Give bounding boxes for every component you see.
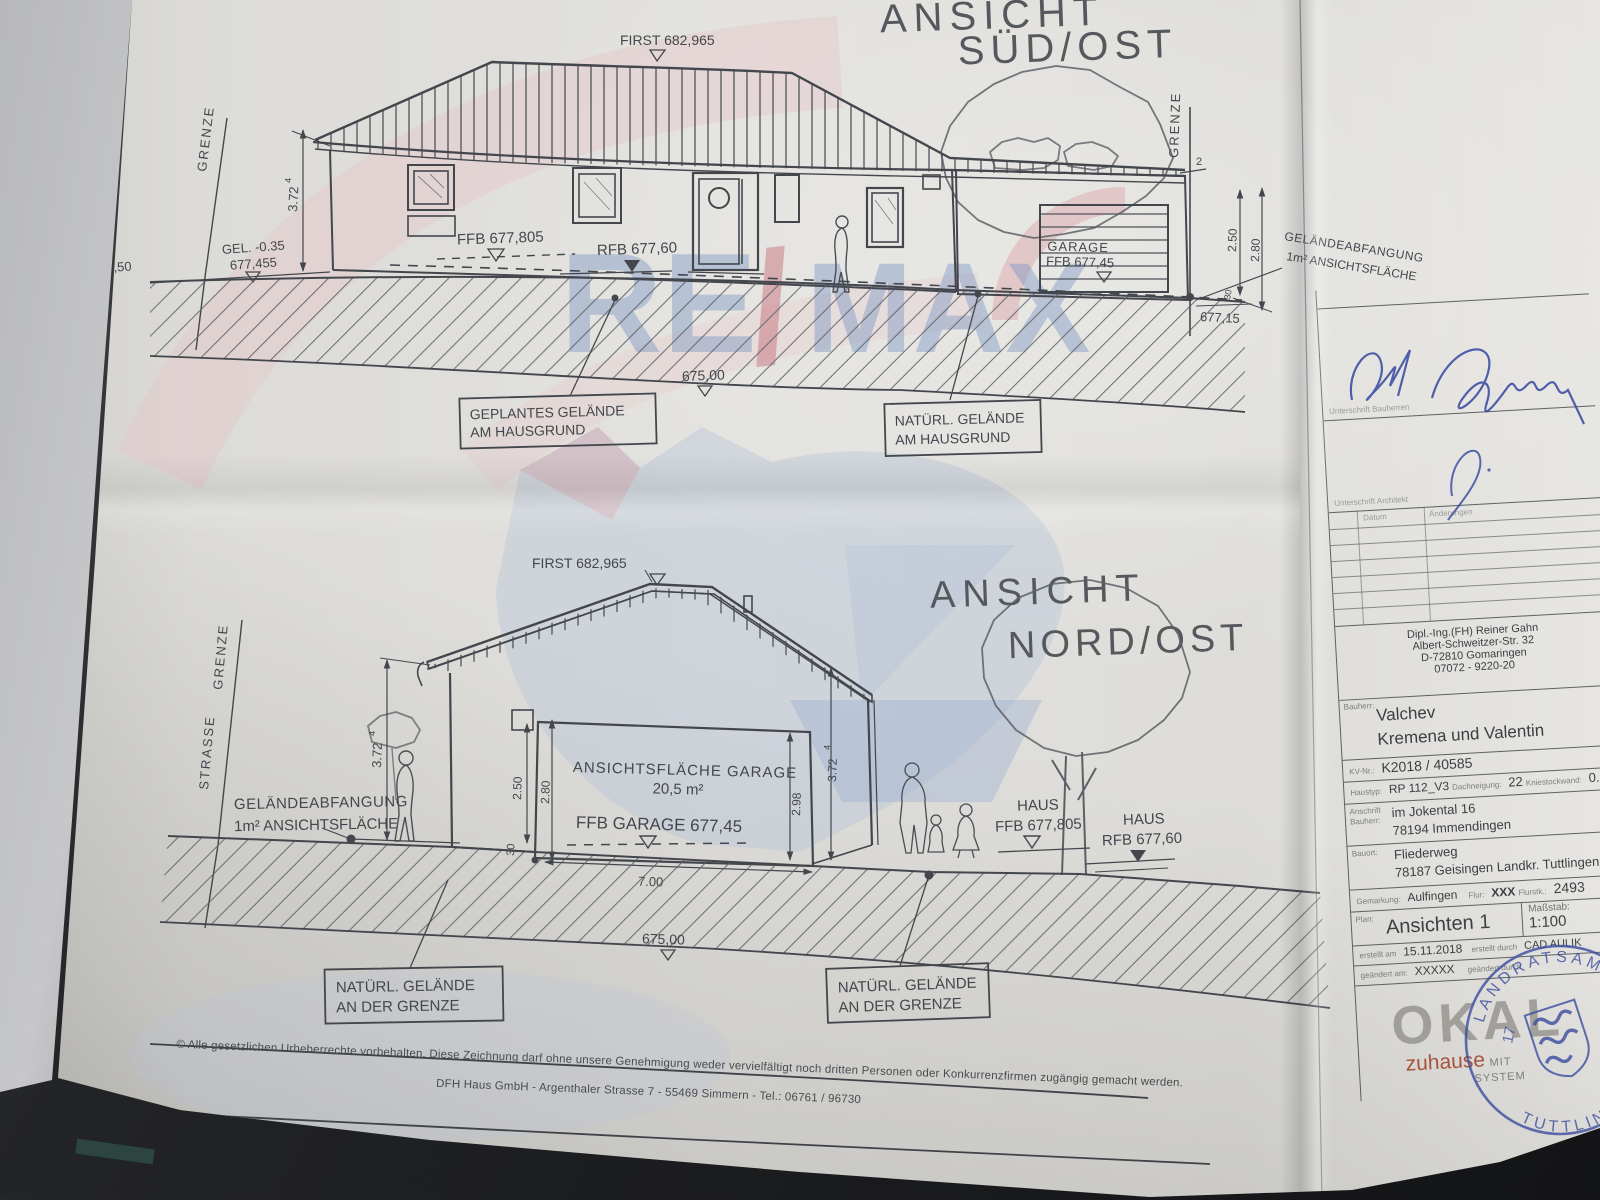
- bauort-label: Bauort:: [1352, 848, 1378, 858]
- view-title-direction: NORD/OST: [1007, 617, 1249, 667]
- view-title-direction: SÜD/OST: [957, 22, 1178, 74]
- gelaende-note-left: GELÄNDEABFANGUNG 1m² ANSICHTSFLÄCHE: [234, 793, 460, 843]
- svg-text:HAUS: HAUS: [1017, 796, 1059, 814]
- horizontal-crease: [0, 455, 1300, 535]
- gemarkung-label: Gemarkung:: [1356, 895, 1400, 906]
- haus-ffb-level: HAUS FFB 677,805: [995, 796, 1090, 852]
- grenze-right-label: GRENZE: [1166, 91, 1183, 158]
- level-675: 675,00: [642, 930, 686, 947]
- dachneigung-value: 22: [1508, 774, 1523, 790]
- svg-text:2.50: 2.50: [1225, 228, 1240, 252]
- svg-text:2.50: 2.50: [510, 776, 525, 800]
- svg-text:FFB 677,805: FFB 677,805: [457, 228, 544, 248]
- haustyp-value: RP 112_V3: [1388, 779, 1449, 796]
- svg-text:FFB 677,805: FFB 677,805: [995, 816, 1082, 836]
- strasse-label: STRASSE: [196, 715, 217, 791]
- flurstk-value: 2493: [1553, 879, 1585, 897]
- revision-table: Datum Änderungen: [1329, 497, 1600, 626]
- svg-text:1m² ANSICHTSFLÄCHE: 1m² ANSICHTSFLÄCHE: [234, 815, 398, 835]
- svg-text:RFB 677,60: RFB 677,60: [597, 239, 678, 259]
- revision-col-datum: Datum: [1363, 512, 1387, 522]
- okal-tagline-mit: MIT: [1489, 1056, 1512, 1069]
- ffb-level: FFB 677,805: [437, 228, 575, 261]
- anschrift-label-1: Anschrift: [1349, 806, 1381, 817]
- dachneigung-label: Dachneigung:: [1452, 780, 1502, 792]
- title-block: Unterschrift Bauherren Unterschrift Arch…: [1315, 275, 1600, 1101]
- svg-text:4: 4: [367, 731, 377, 736]
- plan-title: Ansichten 1: [1385, 911, 1491, 940]
- view-title: ANSICHT: [929, 567, 1146, 617]
- garage-label: GARAGE: [1047, 239, 1109, 256]
- photo-of-architectural-drawing: { "watermark": { "re": "RE", "slash": "/…: [0, 0, 1600, 1200]
- kniestock-label: Kniestockwand:: [1526, 776, 1582, 788]
- gutter-downpipe: [418, 662, 424, 686]
- svg-text:NATÜRL. GELÄNDE: NATÜRL. GELÄNDE: [895, 408, 1025, 428]
- garage-ffb-label: FFB 677,45: [1046, 253, 1114, 270]
- table-edge-sliver: [75, 1139, 154, 1165]
- svg-text:AN DER GRENZE: AN DER GRENZE: [838, 995, 962, 1016]
- okal-tagline-zuhause: zuhause: [1405, 1048, 1486, 1075]
- kniestock-value: 0.04: [1588, 769, 1600, 785]
- erstellt-am-label: erstellt am: [1359, 949, 1396, 960]
- haus-rfb-level: HAUS RFB 677,60: [1085, 810, 1182, 872]
- geaendert-durch-label: geändert durch: [1467, 962, 1521, 974]
- svg-text:NATÜRL. GELÄNDE: NATÜRL. GELÄNDE: [837, 974, 976, 997]
- svg-text:3.72: 3.72: [285, 186, 301, 212]
- svg-text:2.98: 2.98: [789, 792, 804, 816]
- flur-value: XXX: [1491, 884, 1516, 899]
- haustyp-label: Haustyp:: [1350, 787, 1382, 798]
- drawing-sheet: RE / MAX ANSICHT SÜD/OST: [0, 0, 1600, 1200]
- svg-text:4: 4: [283, 178, 293, 184]
- first-level-label: FIRST 682,965: [620, 32, 715, 48]
- signature-field-architekt: Unterschrift Architekt: [1324, 405, 1600, 512]
- svg-text:AM HAUSGRUND: AM HAUSGRUND: [895, 429, 1011, 448]
- svg-text:AN DER GRENZE: AN DER GRENZE: [336, 997, 460, 1016]
- svg-text:AM HAUSGRUND: AM HAUSGRUND: [470, 421, 586, 440]
- svg-text:2.80: 2.80: [1248, 238, 1263, 262]
- flur-label: Flur:: [1468, 890, 1484, 900]
- svg-text:3.72: 3.72: [825, 758, 840, 782]
- svg-text:2.80: 2.80: [538, 780, 553, 804]
- svg-text:NATÜRL. GELÄNDE: NATÜRL. GELÄNDE: [336, 976, 475, 996]
- bauherr-label: Bauherr:: [1343, 701, 1374, 712]
- grenze-label: GRENZE: [210, 623, 231, 690]
- svg-text:RFB 677,60: RFB 677,60: [1102, 830, 1183, 850]
- svg-text:HAUS: HAUS: [1123, 810, 1165, 828]
- level-675: 675,00: [682, 366, 726, 383]
- svg-text:FFB GARAGE 677,45: FFB GARAGE 677,45: [576, 813, 743, 836]
- erstellt-am-value: 15.11.2018: [1403, 941, 1463, 958]
- dimension-250-280-right: 2.50 2.80 30: [1222, 188, 1272, 312]
- signature-label: Unterschrift Architekt: [1334, 495, 1408, 508]
- signature-label: Unterschrift Bauherren: [1329, 403, 1410, 416]
- gemarkung-value: Aulfingen: [1407, 888, 1458, 905]
- kv-number: K2018 / 40585: [1381, 755, 1473, 776]
- erstellt-durch-value: CAD AULIK: [1524, 937, 1582, 952]
- plan-label: Plan:: [1355, 914, 1374, 924]
- svg-text:3.72: 3.72: [369, 742, 385, 768]
- first-level-label: FIRST 682,965: [532, 555, 627, 571]
- signature-field-bauherr: Unterschrift Bauherren: [1317, 293, 1595, 420]
- svg-text:4: 4: [822, 745, 832, 750]
- erstellt-durch-label: erstellt durch: [1471, 942, 1517, 954]
- geaendert-am-label: geändert am:: [1360, 969, 1408, 981]
- revision-col-aenderungen: Änderungen: [1429, 507, 1473, 518]
- dim-2: 2: [1196, 156, 1202, 168]
- svg-text:20,5 m²: 20,5 m²: [652, 780, 703, 798]
- anschrift-label-2: Bauherr:: [1350, 816, 1381, 827]
- svg-text:GELÄNDEABFANGUNG: GELÄNDEABFANGUNG: [234, 793, 408, 813]
- flurstk-label: Flurstk.:: [1518, 887, 1547, 898]
- vertical-fold: [1280, 0, 1332, 1200]
- grenze-left-label: GRENZE: [194, 105, 217, 173]
- kv-label: KV-Nr.:: [1349, 766, 1375, 776]
- geaendert-am-value: XXXXX: [1414, 962, 1455, 978]
- okal-logo-block: OKAL zuhause MIT SYSTEM: [1355, 970, 1600, 1101]
